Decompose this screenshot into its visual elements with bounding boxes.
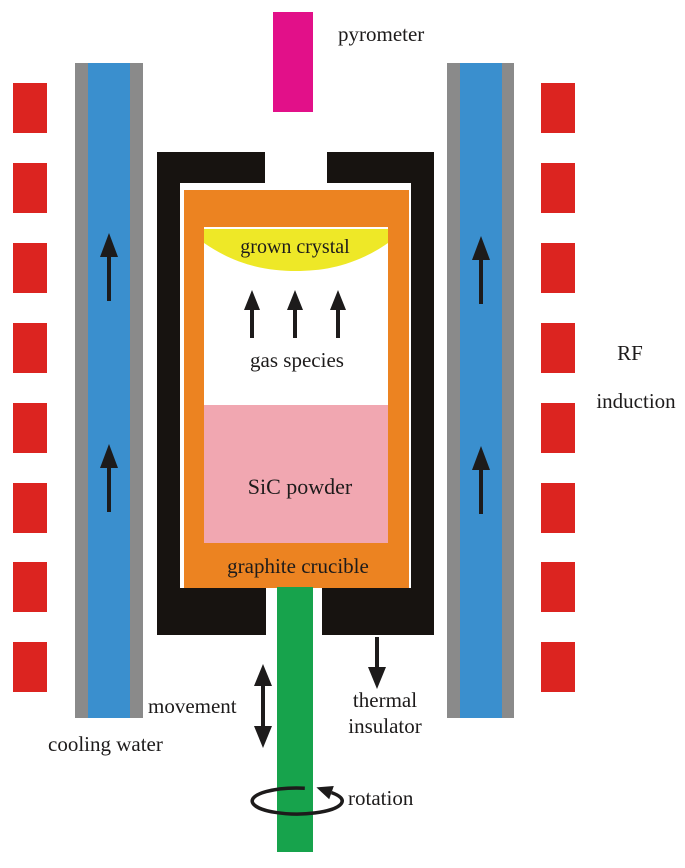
rf-coil-segment [541, 403, 575, 453]
rf-coil-segment [13, 243, 47, 293]
water-flow-arrow-icon [470, 446, 492, 514]
movement-arrow-icon [251, 664, 275, 748]
rf-coil-segment [13, 642, 47, 692]
rf-coil-segment [13, 562, 47, 612]
thermal-insulator-label-line1: thermal [348, 687, 422, 713]
water-flow-arrow-icon [98, 233, 120, 301]
cooling-water-tube-right [447, 63, 514, 718]
cooling-water-tube-left [75, 63, 143, 718]
rf-coil-segment [13, 483, 47, 533]
rf-coil-segment [541, 642, 575, 692]
cooling-water-label: cooling water [48, 732, 163, 756]
rotation-label: rotation [348, 786, 413, 810]
thermal-insulator-wall-right [411, 152, 434, 635]
rf-induction-label-line1: RF [617, 341, 643, 365]
rotation-arrow-icon [247, 784, 347, 818]
rf-coil-segment [13, 323, 47, 373]
movement-label: movement [148, 694, 237, 718]
cooling-water-channel [88, 63, 130, 718]
rf-coil-segment [13, 83, 47, 133]
pvt-growth-diagram: pyrometer grown crystal gas species SiC … [0, 0, 685, 868]
thermal-insulator-label-line2: insulator [348, 713, 422, 739]
pyrometer-window [273, 12, 313, 112]
rf-induction-label-line2: induction [596, 389, 675, 413]
gas-flow-arrow-icon [242, 290, 262, 338]
graphite-crucible-label: graphite crucible [227, 554, 369, 578]
pyrometer-label: pyrometer [338, 22, 424, 46]
rf-coil-segment [541, 562, 575, 612]
rf-coil-segment [541, 323, 575, 373]
thermal-insulator-wall-left [157, 152, 180, 635]
water-flow-arrow-icon [470, 236, 492, 304]
sic-powder-label: SiC powder [248, 474, 353, 499]
rf-coil-segment [541, 243, 575, 293]
rf-coil-segment [13, 163, 47, 213]
rf-coil-segment [13, 403, 47, 453]
gas-species-label: gas species [250, 348, 344, 372]
grown-crystal-label: grown crystal [240, 236, 349, 259]
thermal-insulator-bottom-left [157, 588, 266, 635]
water-flow-arrow-icon [98, 444, 120, 512]
thermal-insulator-bottom-right [322, 588, 434, 635]
rf-coil-segment [541, 83, 575, 133]
gas-flow-arrow-icon [285, 290, 305, 338]
rf-coil-segment [541, 163, 575, 213]
thermal-insulator-label: thermal insulator [348, 687, 422, 739]
thermal-insulator-pointer-arrow-icon [365, 637, 389, 689]
rf-coil-segment [541, 483, 575, 533]
cooling-water-channel [460, 63, 502, 718]
gas-flow-arrow-icon [328, 290, 348, 338]
